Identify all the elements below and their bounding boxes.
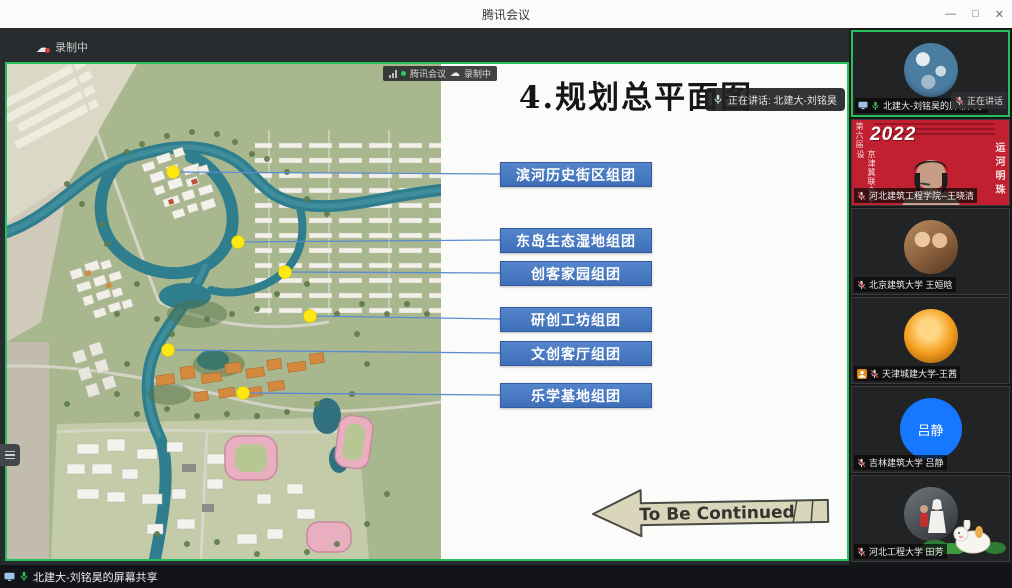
banner-corner-text: 第六届 bbox=[854, 122, 865, 149]
participant-tile-tcu[interactable]: 天津城建大学-王茜 bbox=[851, 297, 1010, 384]
label-cultural-living-room: 文创客厅组团 bbox=[500, 341, 652, 366]
label-research-workshop: 研创工坊组团 bbox=[500, 307, 652, 332]
participant-name-bar: 吉林建筑大学 吕静 bbox=[854, 455, 947, 470]
maximize-button[interactable]: □ bbox=[972, 8, 979, 20]
avatar bbox=[904, 309, 958, 363]
window-controls: — □ ✕ bbox=[945, 0, 1004, 28]
mic-muted-icon bbox=[857, 280, 866, 290]
participant-tile-lvjing[interactable]: 吕静 吉林建筑大学 吕静 bbox=[851, 386, 1010, 473]
participants-sidebar[interactable]: 北建大-刘铭昊的屏幕共享 正在讲话 2022 第六届 bbox=[849, 28, 1012, 565]
mic-muted-icon bbox=[857, 547, 866, 557]
site-plan-map bbox=[7, 64, 441, 559]
mic-muted-icon bbox=[870, 369, 879, 379]
toolbar-toggle-button[interactable] bbox=[0, 444, 20, 466]
label-maker-home: 创客家园组团 bbox=[500, 261, 652, 286]
to-be-continued-arrow: To Be Continued bbox=[585, 483, 833, 546]
mic-muted-icon bbox=[955, 96, 964, 106]
window-titlebar: 腾讯会议 — □ ✕ bbox=[0, 0, 1012, 29]
avatar bbox=[904, 43, 958, 97]
participant-tile-hebeu[interactable]: 河北工程大学 田芳 bbox=[851, 475, 1010, 562]
participant-name-bar: 天津城建大学-王茜 bbox=[854, 366, 960, 381]
tencent-meeting-window: 腾讯会议 — □ ✕ ☁ 录制中 bbox=[0, 0, 1012, 588]
participant-name-bar: 北京建筑大学 王姮晗 bbox=[854, 277, 956, 292]
recording-indicator: ☁ 录制中 bbox=[36, 39, 88, 55]
minimize-button[interactable]: — bbox=[945, 8, 956, 20]
badge-recording-label: 录制中 bbox=[464, 67, 491, 80]
mic-on-icon bbox=[19, 571, 29, 582]
badge-app-name: 腾讯会议 bbox=[410, 67, 446, 80]
screen-share-icon bbox=[858, 101, 868, 110]
close-button[interactable]: ✕ bbox=[995, 8, 1004, 21]
connection-dot-icon bbox=[401, 71, 406, 76]
bottom-status-bar: 北建大-刘铭昊的屏幕共享 bbox=[0, 565, 1012, 588]
mic-muted-icon bbox=[857, 191, 866, 201]
avatar: 吕静 bbox=[900, 398, 962, 460]
participant-name: 河北建筑工程学院--王晓清 bbox=[869, 189, 974, 202]
label-learning-base: 乐学基地组团 bbox=[500, 383, 652, 408]
participant-name: 吉林建筑大学 吕静 bbox=[869, 456, 944, 469]
window-title: 腾讯会议 bbox=[482, 6, 530, 23]
participant-name-bar: 河北工程大学 田芳 bbox=[854, 544, 947, 559]
signal-icon bbox=[389, 70, 397, 78]
participant-tile-wangxiaoqing[interactable]: 2022 第六届 京津冀联合毕设 运河明珠 bbox=[851, 119, 1010, 206]
cloud-recording-icon: ☁ bbox=[36, 41, 49, 54]
participant-name-bar: 河北建筑工程学院--王晓清 bbox=[854, 188, 977, 203]
meeting-main-area: ☁ 录制中 bbox=[0, 28, 1012, 588]
banner-year: 2022 bbox=[870, 124, 916, 146]
mic-muted-icon bbox=[857, 458, 866, 468]
participant-name: 天津城建大学-王茜 bbox=[882, 367, 957, 380]
to-be-continued-text: To Be Continued bbox=[639, 503, 795, 526]
participant-tile-bucea[interactable]: 北京建筑大学 王姮晗 bbox=[851, 208, 1010, 295]
label-east-island-wetland: 东岛生态湿地组团 bbox=[500, 228, 652, 253]
mic-icon bbox=[713, 94, 723, 105]
host-person-icon bbox=[857, 369, 867, 379]
site-plan-map-graphic bbox=[7, 64, 441, 559]
hamburger-icon bbox=[5, 449, 15, 462]
screen-share-region: 4.规划总平面图 滨河历史街区组团 东岛生态湿 bbox=[5, 62, 849, 561]
banner-right-text: 运河明珠 bbox=[991, 142, 1006, 198]
mic-on-icon bbox=[871, 101, 880, 111]
cloud-recording-icon: ☁ bbox=[450, 69, 460, 79]
avatar bbox=[904, 220, 958, 274]
participant-tile-liuminghao[interactable]: 北建大-刘铭昊的屏幕共享 正在讲话 bbox=[851, 30, 1010, 117]
speaking-indicator: 正在讲话 bbox=[951, 92, 1007, 109]
participant-name: 河北工程大学 田芳 bbox=[869, 545, 944, 558]
avatar-initials: 吕静 bbox=[917, 420, 943, 439]
label-binhe-historic-district: 滨河历史街区组团 bbox=[500, 162, 652, 187]
share-source-label: 北建大-刘铭昊的屏幕共享 bbox=[33, 569, 158, 585]
participant-name: 北京建筑大学 王姮晗 bbox=[869, 278, 953, 291]
speaking-indicator-text: 正在讲话 bbox=[967, 94, 1003, 107]
meeting-status-badge: 腾讯会议 ☁ 录制中 bbox=[383, 66, 497, 81]
recording-label: 录制中 bbox=[55, 39, 88, 55]
screen-share-icon bbox=[4, 572, 15, 582]
speaking-now-text: 正在讲话: 北建大-刘铭昊 bbox=[728, 92, 837, 107]
speaking-now-badge: 正在讲话: 北建大-刘铭昊 bbox=[705, 88, 845, 111]
